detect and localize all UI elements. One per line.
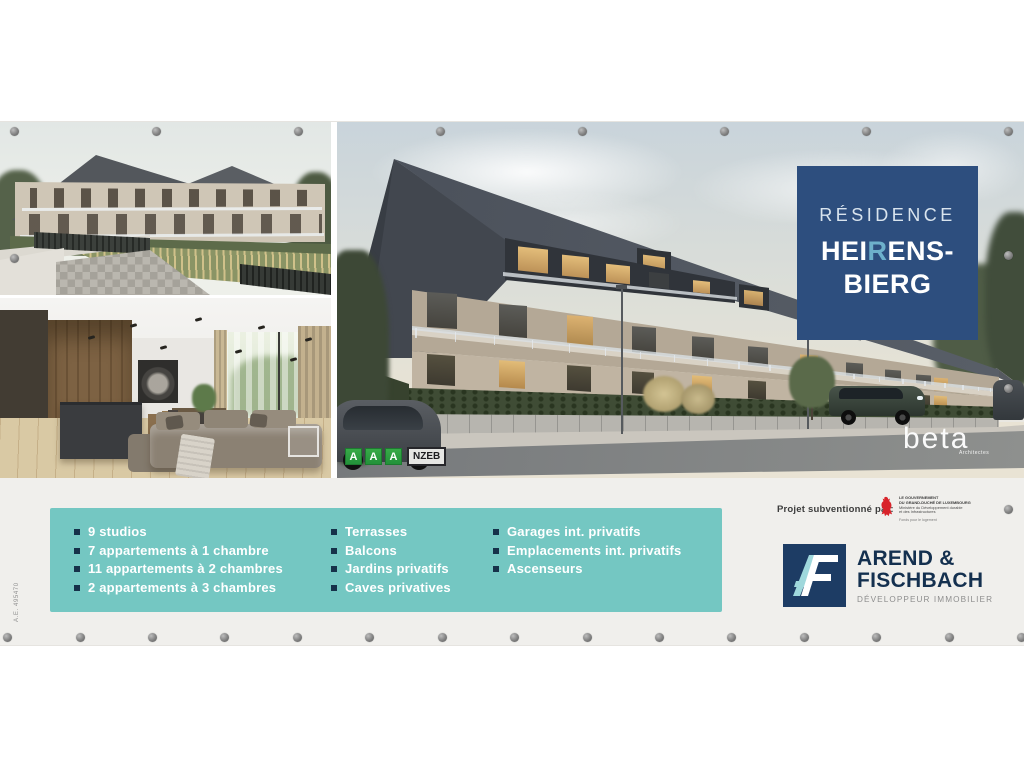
- developer-name: FISCHBACH: [857, 570, 993, 592]
- government-text: LE GOUVERNEMENT DU GRAND-DUCHÉ DE LUXEMB…: [899, 496, 971, 522]
- grommet: [583, 633, 592, 642]
- title-line-name: HEIRENS-: [821, 235, 954, 268]
- bullet-icon: [74, 548, 80, 554]
- features-column-2: Terrasses Balcons Jardins privatifs Cave…: [331, 523, 451, 597]
- window-pane: [427, 292, 457, 329]
- attic-window: [693, 280, 710, 294]
- nzeb-badge: NZEB: [407, 447, 446, 466]
- banner: RÉSIDENCE HEIRENS- BIERG A A A NZEB beta…: [0, 122, 1024, 645]
- grommet: [1004, 251, 1013, 260]
- title-name-accent: R: [868, 236, 888, 266]
- grommet: [872, 633, 881, 642]
- feature-item: 2 appartements à 3 chambres: [74, 579, 283, 598]
- grommet: [578, 127, 587, 136]
- window-pane: [427, 354, 455, 386]
- grass-tuft: [681, 384, 715, 414]
- grommet: [436, 127, 445, 136]
- grommet: [293, 633, 302, 642]
- railing-post: [455, 332, 457, 342]
- window-pane: [748, 380, 766, 399]
- title-line-residence: RÉSIDENCE: [819, 205, 956, 226]
- railing-post: [978, 387, 980, 391]
- grommet: [720, 127, 729, 136]
- interior-photo: [0, 298, 331, 478]
- grommet: [800, 633, 809, 642]
- feature-label: 2 appartements à 3 chambres: [88, 579, 276, 598]
- railing-post: [962, 385, 964, 389]
- feature-item: Balcons: [331, 542, 451, 561]
- car-suv: [829, 378, 925, 428]
- attic-window: [562, 255, 589, 279]
- curtain: [298, 326, 331, 426]
- exterior-rear-photo: [0, 122, 331, 295]
- energy-rating: A A A NZEB: [345, 447, 446, 466]
- bottom-strip: 9 studios 7 appartements à 1 chambre 11 …: [0, 478, 1024, 645]
- bullet-icon: [331, 529, 337, 535]
- grommet: [365, 633, 374, 642]
- title-name-prefix: HEI: [821, 236, 868, 266]
- tree: [985, 212, 1024, 387]
- railing-post: [944, 383, 946, 388]
- window-pane: [567, 316, 593, 347]
- feature-label: Emplacements int. privatifs: [507, 542, 681, 561]
- plant: [192, 384, 216, 412]
- bullet-icon: [331, 585, 337, 591]
- grass-tuft: [643, 376, 685, 412]
- bullet-icon: [331, 548, 337, 554]
- grommet: [862, 127, 871, 136]
- feature-label: Terrasses: [345, 523, 407, 542]
- feature-label: Caves privatives: [345, 579, 451, 598]
- feature-label: Ascenseurs: [507, 560, 583, 579]
- attic-window: [606, 263, 630, 283]
- luxembourg-lion-icon: [877, 496, 894, 518]
- feature-item: 11 appartements à 2 chambres: [74, 560, 283, 579]
- railing-post: [640, 352, 642, 360]
- feature-label: 11 appartements à 2 chambres: [88, 560, 283, 579]
- grommet: [1004, 127, 1013, 136]
- government-logo: LE GOUVERNEMENT DU GRAND-DUCHÉ DE LUXEMB…: [877, 496, 971, 522]
- window-pane: [567, 365, 591, 391]
- window-frame: [278, 332, 280, 422]
- grommet: [220, 633, 229, 642]
- street-lamp: [621, 288, 623, 434]
- car-headlight: [917, 396, 923, 400]
- artwork: [138, 360, 178, 403]
- railing-post: [990, 388, 992, 392]
- af-monogram-icon: [783, 544, 846, 607]
- bullet-icon: [493, 529, 499, 535]
- gov-line: et des Infrastructures: [899, 510, 971, 515]
- railing-post: [707, 359, 709, 366]
- street-lamp-head: [616, 285, 627, 289]
- print-reference: A.E. 495470: [14, 582, 20, 622]
- feature-item: Emplacements int. privatifs: [493, 542, 681, 561]
- grommet: [10, 127, 19, 136]
- grommet: [438, 633, 447, 642]
- grommet: [727, 633, 736, 642]
- feature-item: Garages int. privatifs: [493, 523, 681, 542]
- throw-blanket: [175, 434, 215, 478]
- window-pane: [499, 304, 527, 338]
- bullet-icon: [493, 566, 499, 572]
- grommet: [945, 633, 954, 642]
- developer-logo: AREND & FISCHBACH DÉVELOPPEUR IMMOBILIER: [783, 544, 993, 607]
- bullet-icon: [74, 585, 80, 591]
- grommet: [10, 254, 19, 263]
- bullet-icon: [74, 529, 80, 535]
- railing-post: [605, 348, 607, 356]
- dormer-window: [744, 290, 763, 306]
- car-wheel: [841, 410, 856, 425]
- architect-logo: beta Architectes: [903, 424, 989, 456]
- railing-post: [569, 344, 571, 352]
- grommet: [294, 127, 303, 136]
- architect-subtitle: Architectes: [959, 450, 989, 456]
- feature-label: 7 appartements à 1 chambre: [88, 542, 269, 561]
- title-line-name2: BIERG: [843, 268, 931, 301]
- grommet: [148, 633, 157, 642]
- feature-label: Balcons: [345, 542, 397, 561]
- feature-item: 9 studios: [74, 523, 283, 542]
- pillow: [249, 413, 267, 428]
- main-street-photo: RÉSIDENCE HEIRENS- BIERG A A A NZEB beta…: [337, 122, 1024, 478]
- developer-text: AREND & FISCHBACH DÉVELOPPEUR IMMOBILIER: [857, 544, 993, 607]
- energy-class-badge: A: [385, 448, 402, 465]
- feature-label: Jardins privatifs: [345, 560, 449, 579]
- energy-class-badge: A: [345, 448, 362, 465]
- feature-item: 7 appartements à 1 chambre: [74, 542, 283, 561]
- pillow: [165, 415, 184, 430]
- railing-post: [674, 355, 676, 362]
- feature-item: Ascenseurs: [493, 560, 681, 579]
- bullet-icon: [331, 566, 337, 572]
- feature-label: 9 studios: [88, 523, 147, 542]
- attic-window: [649, 272, 669, 289]
- bullet-icon: [493, 548, 499, 554]
- railing-post: [769, 365, 771, 371]
- bullet-icon: [74, 566, 80, 572]
- car-window: [839, 388, 903, 399]
- railing-post: [738, 362, 740, 369]
- feature-item: Caves privatives: [331, 579, 451, 598]
- energy-class-badge: A: [365, 448, 382, 465]
- features-column-1: 9 studios 7 appartements à 1 chambre 11 …: [74, 523, 283, 597]
- car-window: [343, 406, 423, 430]
- attic-window: [518, 246, 548, 273]
- grommet: [76, 633, 85, 642]
- grommet: [1004, 505, 1013, 514]
- developer-name: AREND &: [857, 548, 993, 570]
- railing-post: [415, 328, 417, 338]
- grommet: [152, 127, 161, 136]
- features-column-3: Garages int. privatifs Emplacements int.…: [493, 523, 681, 579]
- feature-item: Jardins privatifs: [331, 560, 451, 579]
- feature-item: Terrasses: [331, 523, 451, 542]
- developer-tagline: DÉVELOPPEUR IMMOBILIER: [857, 595, 993, 604]
- grommet: [1004, 384, 1013, 393]
- grommet: [510, 633, 519, 642]
- grommet: [655, 633, 664, 642]
- window-pane: [499, 360, 525, 389]
- features-box: 9 studios 7 appartements à 1 chambre 11 …: [50, 508, 722, 612]
- feature-label: Garages int. privatifs: [507, 523, 641, 542]
- gov-footer: Fonds pour le logement: [899, 518, 971, 522]
- railing-post: [494, 336, 496, 345]
- grommet: [3, 633, 12, 642]
- title-name-suffix: ENS-: [888, 236, 955, 266]
- railing-post: [532, 340, 534, 349]
- sofa-cushion: [204, 410, 248, 428]
- grommet: [1017, 633, 1024, 642]
- project-title-box: RÉSIDENCE HEIRENS- BIERG: [797, 166, 978, 340]
- side-table: [288, 426, 319, 457]
